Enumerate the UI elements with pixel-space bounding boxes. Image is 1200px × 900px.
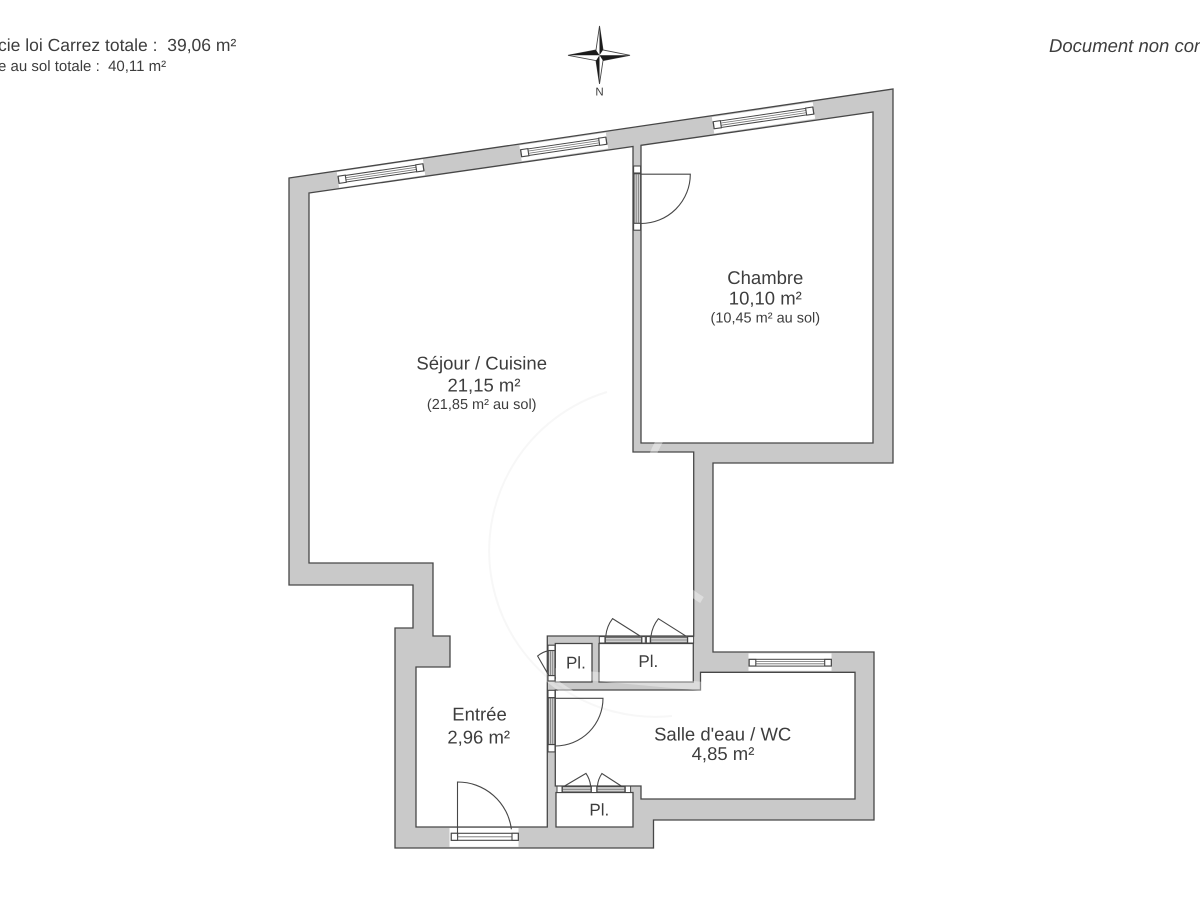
- svg-text:Séjour / Cuisine: Séjour / Cuisine: [416, 353, 547, 374]
- svg-text:Pl.: Pl.: [589, 801, 609, 820]
- svg-text:2,96 m²: 2,96 m²: [447, 727, 510, 748]
- svg-text:Pl.: Pl.: [638, 652, 658, 671]
- svg-text:e au sol totale : 40,11 m²: e au sol totale : 40,11 m²: [0, 58, 166, 75]
- svg-text:(10,45 m² au sol): (10,45 m² au sol): [710, 311, 820, 327]
- svg-text:Salle d'eau / WC: Salle d'eau / WC: [654, 723, 791, 744]
- svg-text:Pl.: Pl.: [566, 653, 586, 672]
- svg-text:cie loi Carrez totale : 39,06: cie loi Carrez totale : 39,06 m²: [0, 35, 236, 55]
- svg-text:N: N: [595, 87, 603, 99]
- svg-text:(21,85 m² au sol): (21,85 m² au sol): [427, 397, 537, 413]
- svg-text:21,15 m²: 21,15 m²: [447, 375, 520, 396]
- svg-text:4,85 m²: 4,85 m²: [692, 743, 755, 764]
- svg-text:Document non contractuel: Document non contractuel: [1049, 35, 1200, 56]
- svg-text:Chambre: Chambre: [727, 267, 803, 288]
- svg-text:Entrée: Entrée: [452, 703, 507, 724]
- svg-text:10,10 m²: 10,10 m²: [729, 287, 802, 308]
